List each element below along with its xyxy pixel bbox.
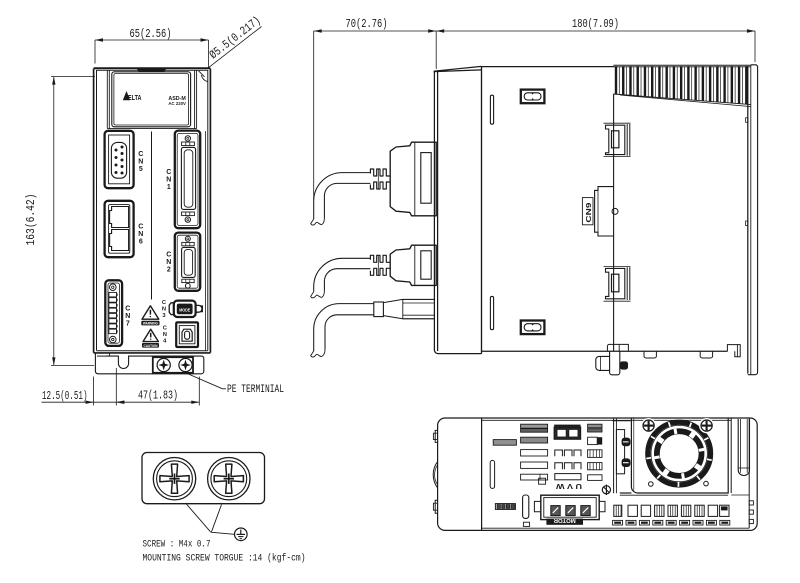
svg-text:C: C xyxy=(166,252,171,259)
svg-text:163(6.42): 163(6.42) xyxy=(24,194,38,246)
svg-text:AC 220V: AC 220V xyxy=(168,101,186,106)
svg-text:180(7.09): 180(7.09) xyxy=(572,17,619,31)
svg-text:PE TERMINIAL: PE TERMINIAL xyxy=(227,384,284,396)
svg-text:C: C xyxy=(166,169,171,176)
svg-text:47(1.83): 47(1.83) xyxy=(138,389,178,403)
svg-text:1: 1 xyxy=(167,184,171,191)
svg-text:N: N xyxy=(138,231,143,238)
svg-text:N: N xyxy=(166,259,171,266)
svg-text:WARNING: WARNING xyxy=(143,322,159,326)
svg-text:SCREW : M4x 0.7: SCREW : M4x 0.7 xyxy=(143,539,211,551)
svg-text:CAUTION: CAUTION xyxy=(144,344,159,348)
svg-text:12.5(0.51): 12.5(0.51) xyxy=(42,389,88,403)
svg-text:C: C xyxy=(138,151,143,158)
svg-text:65(2.56): 65(2.56) xyxy=(130,27,172,41)
svg-text:N: N xyxy=(125,313,130,320)
svg-text:MOTOR: MOTOR xyxy=(553,517,576,523)
svg-text:C: C xyxy=(125,306,130,313)
svg-text:6: 6 xyxy=(139,239,143,246)
svg-text:MOUNTING SCREW TORGUE :14 (kgf: MOUNTING SCREW TORGUE :14 (kgf-cm) xyxy=(143,553,306,565)
svg-text:CN9: CN9 xyxy=(586,202,593,222)
svg-text:N: N xyxy=(163,332,167,338)
svg-text:N: N xyxy=(138,159,143,166)
svg-text:7: 7 xyxy=(126,321,130,328)
svg-text:MODE: MODE xyxy=(179,307,190,312)
svg-text:2: 2 xyxy=(167,267,171,274)
svg-text:C: C xyxy=(138,224,143,231)
svg-text:5: 5 xyxy=(139,166,143,173)
svg-text:N: N xyxy=(166,177,171,184)
svg-text:N: N xyxy=(162,306,166,312)
svg-text:U V W: U V W xyxy=(555,482,582,491)
svg-text:70(2.76): 70(2.76) xyxy=(346,17,388,31)
svg-text:ELTA: ELTA xyxy=(128,93,142,102)
